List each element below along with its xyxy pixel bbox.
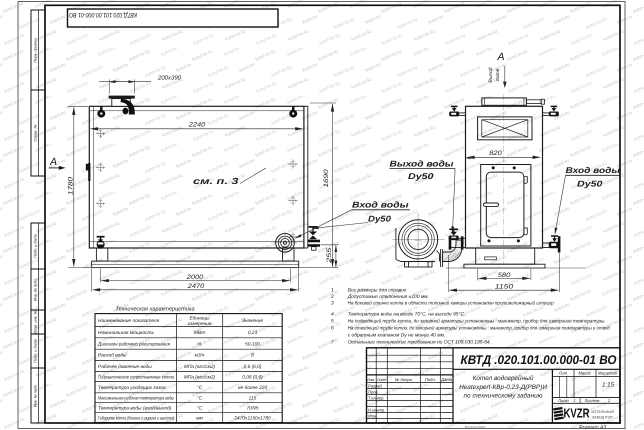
- svg-text:Лист: Лист: [376, 378, 387, 382]
- svg-text:Вход воды: Вход воды: [566, 165, 621, 175]
- svg-text:Т.контр.: Т.контр.: [368, 395, 385, 400]
- svg-text:5: 5: [331, 318, 334, 324]
- svg-text:Значение: Значение: [242, 318, 263, 324]
- svg-text:Подп. и дата: Подп. и дата: [34, 339, 38, 363]
- svg-text:Дата: Дата: [440, 377, 453, 382]
- svg-text:мм: мм: [196, 417, 203, 422]
- svg-text:7: 7: [331, 339, 334, 345]
- svg-text:Взам. инв. №: Взам. инв. №: [34, 310, 38, 333]
- svg-text:Габариты котла (длинна и ширин: Габариты котла (длинна и ширина и высота…: [98, 416, 174, 422]
- svg-text:3: 3: [331, 301, 334, 307]
- svg-text:Номинальная мощность: Номинальная мощность: [98, 330, 155, 336]
- svg-text:Температура уходящих газов: Температура уходящих газов: [98, 385, 166, 391]
- svg-text:Формат А3: Формат А3: [579, 424, 607, 430]
- svg-text:КВТД.020.101.00.000-01 ВО: КВТД.020.101.00.000-01 ВО: [69, 11, 137, 18]
- svg-text:KVZR: KVZR: [564, 406, 590, 421]
- svg-text:Наименование показателя: Наименование показателя: [98, 318, 160, 324]
- svg-text:1: 1: [574, 398, 576, 403]
- svg-text:м3/ч: м3/ч: [195, 353, 205, 359]
- svg-text:Остальные технические требован: Остальные технические требования по ОСТ …: [348, 339, 491, 345]
- svg-text:Утв.: Утв.: [368, 413, 377, 418]
- svg-text:0,06 (0,6): 0,06 (0,6): [242, 374, 263, 380]
- svg-text:А: А: [49, 156, 57, 168]
- svg-text:115: 115: [249, 396, 257, 402]
- svg-text:МВт: МВт: [194, 330, 205, 336]
- svg-text:Единицы: Единицы: [189, 315, 210, 321]
- svg-text:Диапазон рабочего регулировани: Диапазон рабочего регулирования: [97, 341, 170, 347]
- svg-text:2240: 2240: [188, 121, 206, 128]
- svg-text:820: 820: [489, 150, 502, 157]
- svg-text:см. п. 3: см. п. 3: [193, 176, 239, 186]
- svg-text:1780: 1780: [67, 176, 74, 195]
- svg-text:Справ. №: Справ. №: [34, 124, 38, 141]
- svg-text:70/95: 70/95: [246, 406, 258, 412]
- svg-text:измерения: измерения: [187, 322, 211, 327]
- svg-text:2470: 2470: [187, 283, 205, 290]
- svg-text:Heatexpert-КВр-0,23-Д(РВР)И: Heatexpert-КВр-0,23-Д(РВР)И: [459, 384, 547, 391]
- svg-text:Подп.: Подп.: [425, 377, 436, 382]
- svg-text:Рабочее давление воды: Рабочее давление воды: [98, 364, 152, 370]
- svg-text:Пров.: Пров.: [368, 389, 379, 394]
- svg-text:Инв. № подл.: Инв. № подл.: [34, 384, 38, 408]
- svg-text:не более 220: не более 220: [238, 385, 268, 391]
- svg-text:4: 4: [331, 311, 334, 317]
- svg-text:°С: °С: [197, 385, 203, 391]
- svg-text:2: 2: [330, 294, 334, 300]
- svg-text:№ докум.: № докум.: [395, 377, 413, 382]
- svg-text:газов: газов: [495, 68, 501, 81]
- svg-text:200х390: 200х390: [157, 75, 182, 82]
- svg-text:А: А: [497, 51, 505, 63]
- svg-text:1150: 1150: [495, 284, 514, 291]
- svg-text:Копировал: Копировал: [465, 424, 486, 429]
- svg-text:0,23: 0,23: [248, 330, 258, 336]
- svg-text:На подводящей трубе котла, до: На подводящей трубе котла, до запорной а…: [348, 318, 606, 324]
- svg-text:Расход воды: Расход воды: [98, 353, 127, 359]
- svg-text:Выход воды: Выход воды: [390, 158, 454, 168]
- svg-text:2000: 2000: [186, 274, 204, 281]
- svg-text:%: %: [197, 341, 202, 347]
- svg-text:Допустимые отклонения ±100 мм: Допустимые отклонения ±100 мм.: [347, 294, 429, 300]
- svg-text:Масштаб: Масштаб: [598, 371, 618, 376]
- svg-text:Выход: Выход: [488, 67, 494, 82]
- svg-text:Температура воды на входе 70°: Температура воды на входе 70°С, на выход…: [348, 311, 466, 317]
- svg-text:КОТЕЛЬНЫЙ: КОТЕЛЬНЫЙ: [592, 409, 615, 414]
- svg-text:с обратным клапаном Dу не мен: с обратным клапаном Dу не менее 40 мм.: [348, 332, 446, 338]
- svg-text:Максимальная рабочая температу: Максимальная рабочая температура воды: [98, 396, 174, 402]
- svg-text:Dy50: Dy50: [368, 214, 391, 224]
- svg-text:255: 255: [326, 247, 333, 264]
- svg-text:Dy50: Dy50: [577, 179, 603, 189]
- svg-text:МПа (кгс/см2): МПа (кгс/см2): [184, 364, 216, 370]
- svg-text:Техническая характеристика: Техническая характеристика: [115, 307, 194, 313]
- svg-text:Лит.: Лит.: [558, 371, 569, 376]
- svg-text:0,6 (6,0): 0,6 (6,0): [244, 364, 262, 370]
- svg-text:°С: °С: [197, 396, 203, 402]
- svg-text:Листов: Листов: [584, 398, 601, 403]
- svg-text:580: 580: [498, 272, 511, 279]
- svg-text:8: 8: [251, 353, 254, 359]
- svg-text:Подп. и дата: Подп. и дата: [34, 234, 38, 258]
- svg-text:по техническому заданию: по техническому заданию: [464, 392, 543, 399]
- svg-text:На отводящей трубе котла, до з: На отводящей трубе котла, до запорной ар…: [348, 325, 610, 331]
- svg-text:Вход воды: Вход воды: [352, 200, 409, 210]
- svg-text:Температура воды (вход/выход): Температура воды (вход/выход): [98, 406, 172, 412]
- svg-text:Все размеры для справок: Все размеры для справок: [348, 287, 407, 293]
- svg-text:КВЦ4: КВЦ4: [415, 239, 422, 242]
- svg-text:1690: 1690: [323, 169, 330, 188]
- svg-text:6: 6: [331, 325, 334, 331]
- svg-text:Гидравлическое сопротивление к: Гидравлическое сопротивление котла: [98, 374, 174, 380]
- svg-text:Dy50: Dy50: [408, 171, 434, 181]
- svg-text:1: 1: [331, 287, 334, 293]
- svg-text:Инв. № дубл.: Инв. № дубл.: [34, 278, 38, 301]
- svg-text:Лист: Лист: [557, 398, 569, 403]
- svg-text:Разраб.: Разраб.: [368, 383, 383, 388]
- svg-text:МПа (кгс/см2): МПа (кгс/см2): [184, 374, 216, 380]
- svg-text:Изм.: Изм.: [367, 378, 375, 382]
- svg-text:Перв. примен.: Перв. примен.: [34, 37, 38, 62]
- svg-text:ЗАВОД РЭП: ЗАВОД РЭП: [592, 415, 613, 419]
- svg-text:2470х1150х1780: 2470х1150х1780: [233, 416, 271, 422]
- svg-text:°С: °С: [197, 406, 203, 412]
- svg-text:1:15: 1:15: [602, 382, 615, 389]
- svg-text:Котел водогрейный: Котел водогрейный: [473, 375, 534, 382]
- svg-text:Н.контр.: Н.контр.: [368, 407, 385, 412]
- svg-text:Масса: Масса: [578, 371, 591, 376]
- svg-text:КВТД .020.101.00.000-01 ВО: КВТД .020.101.00.000-01 ВО: [461, 353, 617, 367]
- svg-text:На боковой стенке котла в обла: На боковой стенке котла в области топочн…: [348, 301, 554, 307]
- svg-text:50-100: 50-100: [245, 341, 260, 347]
